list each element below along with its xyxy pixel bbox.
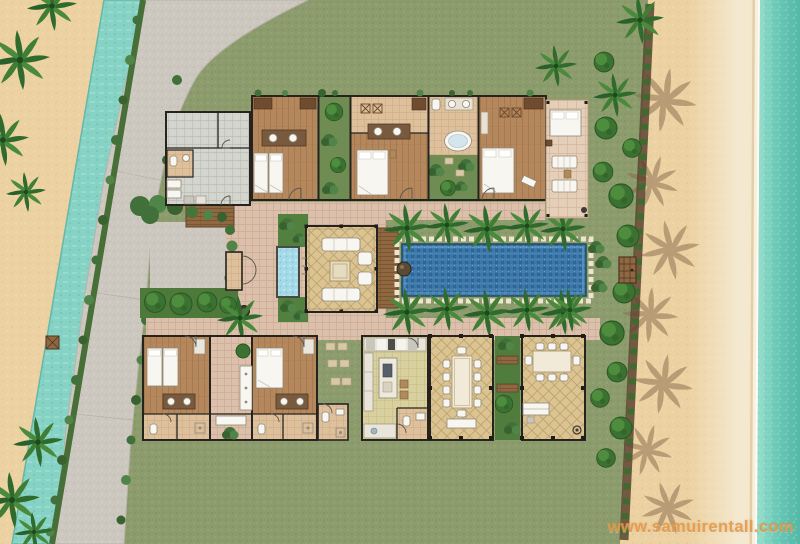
stepping-stone xyxy=(340,360,349,367)
garden-tree xyxy=(609,184,633,208)
nightstand xyxy=(390,150,396,158)
sink xyxy=(269,134,277,142)
sink xyxy=(280,398,287,405)
pillow xyxy=(484,150,496,157)
cooktop xyxy=(388,339,395,350)
armchair xyxy=(358,272,372,285)
wood-bridge xyxy=(497,384,518,392)
sink xyxy=(462,100,469,107)
wet-sand xyxy=(688,0,758,544)
refrigerator xyxy=(408,339,417,350)
water-jar-highlight xyxy=(400,265,404,269)
garden-tree xyxy=(610,417,632,439)
sala-table xyxy=(533,351,571,372)
sea-sparkle xyxy=(757,0,800,544)
pillow xyxy=(566,112,578,119)
sink xyxy=(448,100,455,107)
beach-terrace xyxy=(546,100,588,218)
garden-tree xyxy=(617,225,639,247)
side-table xyxy=(546,140,552,146)
pillow xyxy=(258,350,268,356)
pillow xyxy=(499,150,511,157)
stepping-stone xyxy=(331,378,340,385)
dining-pavilion xyxy=(428,334,493,440)
garden-tree xyxy=(595,117,617,139)
lotus-pond xyxy=(277,247,299,297)
appliance xyxy=(377,339,386,350)
beach-gate xyxy=(619,257,636,283)
sink xyxy=(336,409,344,415)
toilet xyxy=(432,99,440,110)
sofa-south xyxy=(322,288,360,301)
sink xyxy=(183,155,190,162)
stool xyxy=(400,391,408,399)
wardrobe xyxy=(254,98,272,109)
wardrobe xyxy=(300,98,316,109)
toilet xyxy=(322,412,329,422)
kitchen-counter-west xyxy=(364,353,373,411)
garden-tree xyxy=(593,162,613,182)
parking-court xyxy=(150,222,226,290)
water-jar-feature xyxy=(397,262,411,276)
pillow xyxy=(552,112,564,119)
stepping-stone xyxy=(456,170,464,176)
wood-bridge xyxy=(497,356,518,364)
sink xyxy=(371,428,377,434)
garden-tree xyxy=(591,389,610,408)
sink xyxy=(296,398,303,405)
sala-garden-strip xyxy=(495,336,521,440)
sink xyxy=(289,134,297,142)
sink xyxy=(183,398,190,405)
toilet xyxy=(258,424,265,434)
bathtub-water xyxy=(449,135,468,148)
sofa-north xyxy=(322,238,360,251)
lower-wing xyxy=(143,334,585,440)
island-sink xyxy=(383,364,392,377)
toilet xyxy=(403,416,410,426)
sideboard xyxy=(447,419,476,428)
appliance xyxy=(196,196,206,204)
swimming-pool xyxy=(402,244,586,296)
pillow xyxy=(271,350,281,356)
stepping-stone xyxy=(342,378,351,385)
console-table xyxy=(481,112,488,134)
villa-site-plan: www.samuirentall.com xyxy=(0,0,800,544)
kitchen-counter-south xyxy=(364,424,396,438)
stepping-stone xyxy=(445,158,453,164)
stepping-stone xyxy=(328,360,337,367)
stool xyxy=(400,380,408,388)
plant-pot xyxy=(581,207,587,213)
garden-tree xyxy=(597,449,616,468)
counter-unit xyxy=(167,180,181,188)
garden-tree xyxy=(600,321,624,345)
service-quarters xyxy=(166,112,250,205)
island-cabinet xyxy=(383,382,392,392)
garden-tree xyxy=(607,362,627,382)
pillow xyxy=(165,350,177,356)
pillow xyxy=(256,155,267,161)
courtyard-tree xyxy=(236,344,250,358)
appliance xyxy=(366,339,375,350)
sun-lounger xyxy=(552,180,577,192)
toilet xyxy=(170,156,177,166)
lounge-table xyxy=(564,170,571,178)
stepping-stone xyxy=(338,343,347,350)
bar-appliance xyxy=(527,417,534,423)
garden-tree xyxy=(623,139,642,158)
sink xyxy=(416,413,425,420)
pillow xyxy=(359,152,371,159)
garden-tree xyxy=(613,281,635,303)
closet xyxy=(524,98,543,109)
pillow xyxy=(271,155,282,161)
sink xyxy=(393,128,401,136)
stepping-stone xyxy=(326,343,335,350)
counter-unit xyxy=(167,190,181,198)
closet xyxy=(412,98,426,110)
garden-tree xyxy=(594,52,614,72)
appliance xyxy=(397,339,406,350)
pillow xyxy=(373,152,385,159)
wardrobe xyxy=(303,339,314,354)
sun-lounger xyxy=(552,156,577,168)
dining-table xyxy=(452,356,472,408)
pillow xyxy=(149,350,161,356)
watermark: www.samuirentall.com xyxy=(608,518,794,537)
toilet xyxy=(150,424,157,434)
site-plan-drawing xyxy=(0,0,800,544)
sink xyxy=(167,398,174,405)
armchair xyxy=(358,252,372,265)
courtyard-bench xyxy=(216,416,246,425)
kitchen xyxy=(362,336,428,440)
beach-sala xyxy=(520,334,585,440)
appliance xyxy=(184,196,194,204)
entry-gatehouse xyxy=(226,252,242,290)
sink xyxy=(374,128,382,136)
